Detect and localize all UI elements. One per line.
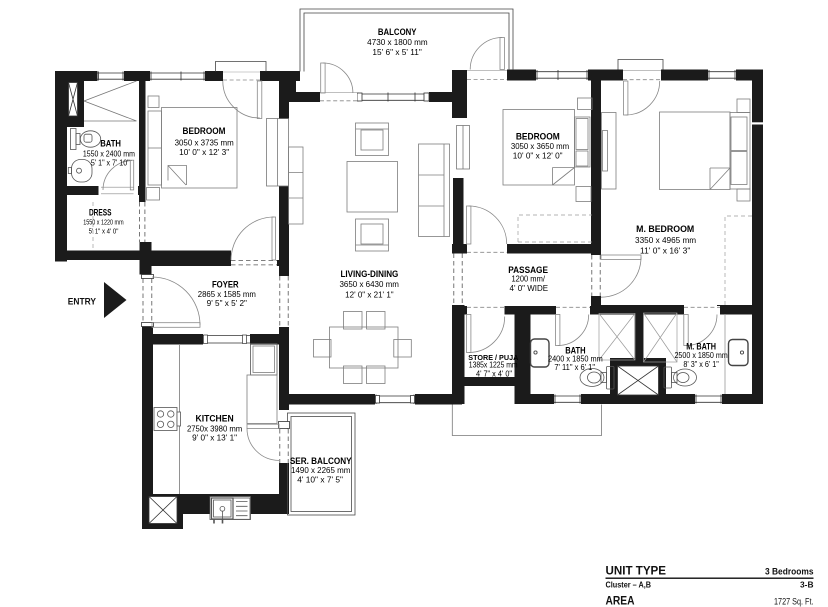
svg-text:15' 6" x 5' 11": 15' 6" x 5' 11" <box>372 48 422 57</box>
svg-text:1490 x 2265 mm: 1490 x 2265 mm <box>291 466 351 475</box>
svg-text:AREA: AREA <box>606 594 635 607</box>
svg-text:1550 x 1220 mm: 1550 x 1220 mm <box>83 220 124 227</box>
svg-text:M. BEDROOM: M. BEDROOM <box>636 224 694 234</box>
svg-text:9' 5" x 5' 2": 9' 5" x 5' 2" <box>207 299 247 308</box>
svg-text:BALCONY: BALCONY <box>378 27 417 37</box>
svg-text:KITCHEN: KITCHEN <box>196 414 234 424</box>
svg-text:LIVING-DINING: LIVING-DINING <box>340 269 398 279</box>
svg-text:11' 0" x 16' 3": 11' 0" x 16' 3" <box>640 246 690 255</box>
svg-text:BEDROOM: BEDROOM <box>516 131 560 141</box>
svg-text:9' 0" x 13' 1": 9' 0" x 13' 1" <box>192 434 237 443</box>
svg-text:FOYER: FOYER <box>212 279 239 289</box>
svg-text:3-B: 3-B <box>800 580 814 590</box>
svg-text:3650 x 6430 mm: 3650 x 6430 mm <box>340 280 400 289</box>
svg-text:4' 10" x 7' 5": 4' 10" x 7' 5" <box>297 476 343 485</box>
svg-text:M. BATH: M. BATH <box>686 341 716 351</box>
svg-text:10' 0" x 12' 3": 10' 0" x 12' 3" <box>179 148 229 157</box>
svg-text:8' 3" x 6' 1": 8' 3" x 6' 1" <box>683 360 719 369</box>
svg-text:2400 x 1850 mm: 2400 x 1850 mm <box>548 355 603 364</box>
svg-text:3050 x 3735 mm: 3050 x 3735 mm <box>175 139 235 148</box>
svg-text:BATH: BATH <box>100 139 121 149</box>
svg-text:1727 Sq. Ft.: 1727 Sq. Ft. <box>774 597 814 607</box>
svg-text:10' 0" x 12' 0": 10' 0" x 12' 0" <box>513 152 563 161</box>
svg-text:3050 x 3650 mm: 3050 x 3650 mm <box>511 142 570 151</box>
svg-text:2865 x 1585 mm: 2865 x 1585 mm <box>198 290 256 299</box>
svg-text:2750x 3980 mm: 2750x 3980 mm <box>187 424 243 433</box>
svg-text:4730 x 1800 mm: 4730 x 1800 mm <box>367 38 428 47</box>
svg-text:1550 x 2400 mm: 1550 x 2400 mm <box>83 149 135 158</box>
svg-text:DRESS: DRESS <box>89 208 112 218</box>
svg-text:3350 x 4965 mm: 3350 x 4965 mm <box>635 236 696 245</box>
svg-text:3 Bedrooms: 3 Bedrooms <box>765 567 814 578</box>
svg-text:UNIT TYPE: UNIT TYPE <box>606 564 667 578</box>
svg-text:1385x 1225 mm: 1385x 1225 mm <box>469 361 518 370</box>
svg-text:1200 mm/: 1200 mm/ <box>511 275 545 284</box>
svg-text:BEDROOM: BEDROOM <box>183 126 226 136</box>
svg-text:SER. BALCONY: SER. BALCONY <box>290 456 352 466</box>
svg-text:5' 1" x 4' 0": 5' 1" x 4' 0" <box>89 228 119 235</box>
svg-text:ENTRY: ENTRY <box>68 297 96 307</box>
svg-text:4' 7" x 4' 0": 4' 7" x 4' 0" <box>476 370 512 379</box>
svg-text:12' 0" x 21' 1": 12' 0" x 21' 1" <box>345 290 394 299</box>
svg-text:7' 11" x 6' 1": 7' 11" x 6' 1" <box>554 363 595 372</box>
svg-text:Cluster – A,B: Cluster – A,B <box>606 580 652 590</box>
svg-text:PASSAGE: PASSAGE <box>508 265 548 275</box>
svg-text:2500 x 1850 mm: 2500 x 1850 mm <box>674 351 728 360</box>
svg-text:5' 1" x 7' 10": 5' 1" x 7' 10" <box>91 159 130 168</box>
svg-text:4' 0" WIDE: 4' 0" WIDE <box>510 284 549 293</box>
